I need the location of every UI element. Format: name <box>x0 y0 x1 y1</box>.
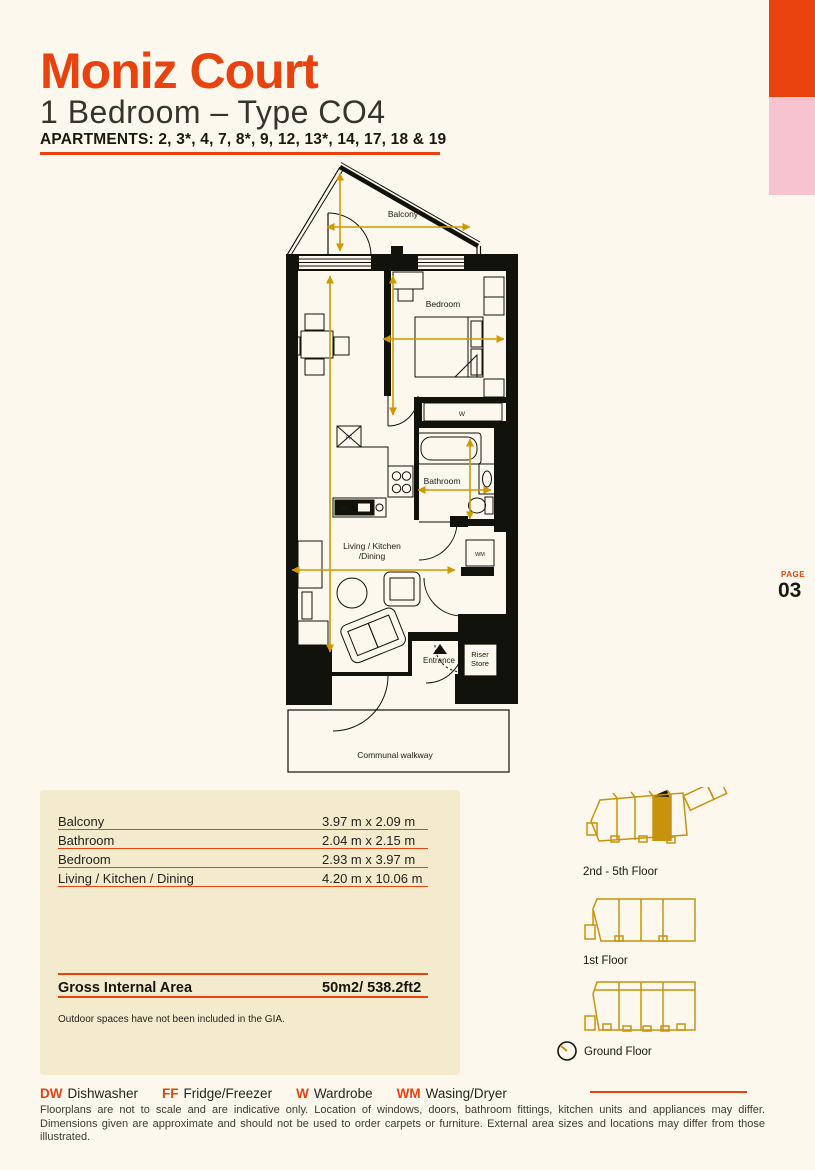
gia-note: Outdoor spaces have not been included in… <box>58 1014 285 1025</box>
bathroom-label: Bathroom <box>424 476 461 486</box>
riser-label-line1: Riser <box>471 650 489 659</box>
brochure-page: Moniz Court 1 Bedroom – Type CO4 APARTME… <box>0 0 815 1170</box>
legend-item: WWardrobe <box>296 1086 373 1101</box>
legend-abbr: FF <box>162 1086 179 1101</box>
table-row: Bedroom 2.93 m x 3.97 m <box>58 849 428 868</box>
riser-label-line2: Store <box>471 659 489 668</box>
legend-item: WMWasing/Dryer <box>397 1086 507 1101</box>
page-indicator-label: PAGE <box>781 570 805 579</box>
apartments-line: APARTMENTS: 2, 3*, 4, 7, 8*, 9, 12, 13*,… <box>40 131 446 149</box>
room-size: 4.20 m x 10.06 m <box>322 871 422 886</box>
table-row: Bathroom 2.04 m x 2.15 m <box>58 830 428 849</box>
appliance-legend: DWDishwasher FFFridge/Freezer WWardrobe … <box>40 1086 507 1101</box>
corner-pink-block <box>769 97 815 195</box>
balcony-label: Balcony <box>388 209 419 219</box>
legend-name: Dishwasher <box>68 1086 139 1101</box>
room-name: Bedroom <box>58 852 111 867</box>
legend-item: FFFridge/Freezer <box>162 1086 272 1101</box>
legend-rule <box>590 1091 747 1093</box>
legend-name: Wardrobe <box>314 1086 373 1101</box>
room-size: 2.04 m x 2.15 m <box>322 833 415 848</box>
compass-icon <box>556 1040 578 1062</box>
bathroom-fixtures <box>417 433 495 514</box>
locator-label-first-floor: 1st Floor <box>583 955 628 967</box>
corner-orange-block <box>769 0 815 97</box>
page-title: Moniz Court <box>40 42 318 100</box>
locator-diagram-ground-floor <box>583 978 703 1042</box>
legend-name: Fridge/Freezer <box>184 1086 273 1101</box>
room-name: Living / Kitchen / Dining <box>58 871 194 886</box>
gia-row: Gross Internal Area 50m2/ 538.2ft2 <box>58 973 428 998</box>
communal-walkway-outline <box>288 710 509 772</box>
header-rule <box>40 152 440 155</box>
room-name: Bathroom <box>58 833 114 848</box>
legend-abbr: W <box>296 1086 309 1101</box>
washer-label: WM <box>475 552 485 558</box>
fridge-label: FF <box>346 436 352 442</box>
living-label-line1: Living / Kitchen <box>343 541 401 551</box>
bedroom-furniture <box>393 272 504 397</box>
disclaimer-text: Floorplans are not to scale and are indi… <box>40 1104 765 1145</box>
floorplan: Balcony Bedroom Bathroom Living / Kitche… <box>270 160 526 780</box>
table-row: Living / Kitchen / Dining 4.20 m x 10.06… <box>58 868 428 887</box>
page-indicator-number: 03 <box>778 579 801 603</box>
legend-abbr: WM <box>397 1086 421 1101</box>
room-size: 2.93 m x 3.97 m <box>322 852 415 867</box>
dishwasher-label: DW <box>340 506 349 512</box>
room-size: 3.97 m x 2.09 m <box>322 814 415 829</box>
locator-diagram-first-floor <box>583 895 703 949</box>
doors <box>333 396 463 731</box>
entrance-label: Entrance <box>423 656 456 665</box>
unit-type-subtitle: 1 Bedroom – Type CO4 <box>40 94 386 131</box>
gia-label: Gross Internal Area <box>58 980 192 996</box>
locator-label-upper-floors: 2nd - 5th Floor <box>583 866 658 878</box>
legend-item: DWDishwasher <box>40 1086 138 1101</box>
gia-value: 50m2/ 538.2ft2 <box>322 980 421 996</box>
table-row: Balcony 3.97 m x 2.09 m <box>58 811 428 830</box>
legend-abbr: DW <box>40 1086 63 1101</box>
dimensions-table: Balcony 3.97 m x 2.09 m Bathroom 2.04 m … <box>40 790 460 1075</box>
locator-label-ground-floor: Ground Floor <box>584 1046 652 1058</box>
room-name: Balcony <box>58 814 104 829</box>
living-label-line2: /Dining <box>359 551 386 561</box>
legend-name: Wasing/Dryer <box>426 1086 507 1101</box>
bedroom-label: Bedroom <box>426 299 461 309</box>
wardrobe-label: W <box>459 411 466 418</box>
locator-diagram-upper-floors <box>583 787 739 865</box>
balcony-structure <box>287 163 481 258</box>
walkway-label: Communal walkway <box>357 750 433 760</box>
